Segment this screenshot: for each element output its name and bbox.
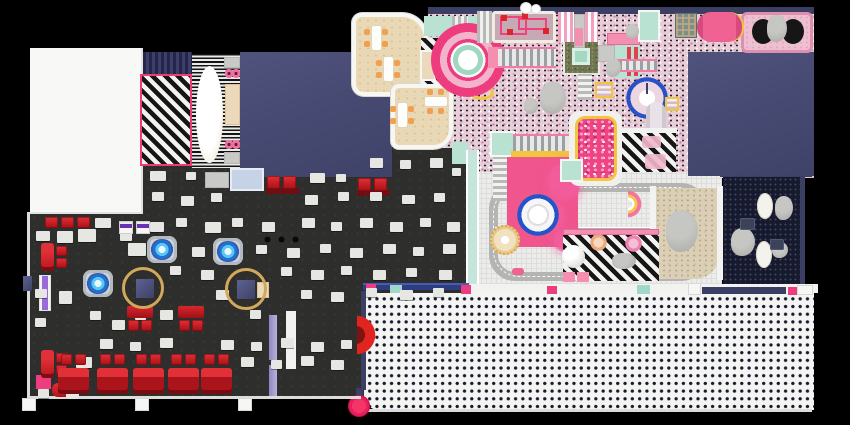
dining-table [192, 247, 205, 257]
arcade-machine [119, 221, 133, 234]
orange-chair [390, 118, 396, 124]
dining-table [176, 218, 187, 227]
dining-table [271, 360, 282, 369]
dining-table [241, 357, 254, 367]
wall-pillar [135, 398, 149, 411]
dining-table [181, 196, 194, 206]
booth-chair [218, 354, 229, 365]
navycube [23, 276, 32, 291]
booth-chair [150, 354, 161, 365]
vstripes-pink [558, 12, 574, 42]
dining-table [201, 270, 214, 280]
red-bench [41, 350, 54, 378]
red-chair [128, 320, 139, 331]
cafe-table [757, 193, 773, 219]
pinkpatch [642, 136, 661, 148]
red-chair [61, 217, 74, 228]
dining-table [331, 222, 342, 231]
dining-table [150, 222, 164, 232]
dining-table [447, 222, 460, 232]
red-chair [56, 246, 67, 256]
orange-chair [364, 41, 370, 47]
dining-table [373, 270, 386, 280]
dining-table [150, 171, 166, 181]
navy-room-right [688, 52, 814, 176]
wdot [532, 5, 540, 13]
pink-donut-pair [225, 68, 240, 79]
yellow-arc [470, 86, 494, 100]
screenshot [0, 0, 850, 425]
dining-table [90, 311, 101, 320]
vstripes-pink [585, 12, 598, 42]
dining-table [443, 244, 456, 254]
mint [562, 161, 581, 180]
dining-table [130, 342, 141, 351]
orange-chair [376, 60, 382, 66]
dining-table [100, 339, 113, 349]
dining-table [366, 288, 377, 297]
white-ball [562, 245, 585, 268]
red-chair [56, 258, 67, 268]
red-chair [141, 320, 152, 331]
dining-table [256, 245, 267, 254]
orange-chair [382, 29, 388, 35]
booth-chair [100, 354, 111, 365]
dining-table [311, 270, 324, 280]
booth-bench [97, 368, 128, 394]
holo-table [83, 270, 113, 297]
dining-table [452, 168, 461, 176]
stage-oval [196, 66, 223, 163]
dining-table [301, 290, 312, 299]
dining-table [112, 320, 125, 330]
red-chair [179, 320, 190, 331]
pinkblock [577, 272, 589, 282]
floor-plan [0, 0, 850, 425]
lavender-counter [269, 365, 277, 396]
dining-table [251, 342, 262, 351]
pillar [797, 285, 813, 295]
dining-table [360, 218, 373, 228]
rainbow-arc [628, 189, 645, 219]
teal-wall [466, 150, 479, 293]
reddot [501, 15, 507, 21]
booth-chair [171, 354, 182, 365]
dining-table [413, 247, 424, 256]
red-chair [77, 217, 90, 228]
booth-chair [204, 354, 215, 365]
dining-table [262, 222, 275, 232]
vstripes-gray [477, 11, 492, 43]
gblock [224, 57, 240, 68]
dining-table [310, 173, 325, 183]
red-table [178, 306, 204, 318]
orange-chair [394, 72, 400, 78]
red-bench-seat [283, 176, 296, 189]
red-bench-seat [267, 176, 280, 189]
booth-bench [168, 368, 199, 394]
dining-table [128, 243, 146, 256]
rung-bridge [488, 47, 556, 68]
navywall [800, 177, 805, 288]
pinkblock [575, 28, 583, 46]
plaid-mat [675, 13, 697, 38]
reddot [543, 28, 549, 34]
cream-table [398, 103, 407, 127]
booth-chair [61, 354, 72, 365]
dining-table [331, 360, 344, 370]
arcade-machine [136, 221, 150, 234]
navy-cube [237, 280, 255, 299]
dining-table [281, 267, 292, 276]
dining-table [35, 318, 46, 327]
pink-seat [625, 235, 642, 252]
terrace-edge [368, 409, 812, 412]
terrace-floor [363, 291, 814, 410]
red-bench-seat [358, 178, 371, 191]
dining-table [221, 340, 234, 350]
stage-stripes [140, 74, 192, 166]
yellow-ladder [665, 97, 679, 111]
pinksq [547, 286, 557, 294]
bar-stool [277, 235, 286, 244]
dining-table [301, 356, 314, 366]
dining-table [38, 389, 49, 398]
bar-stool [263, 235, 272, 244]
dining-table [320, 244, 331, 253]
dining-table [57, 231, 73, 243]
orange-chair [427, 108, 433, 114]
dining-table [400, 290, 413, 300]
tealseg [637, 285, 650, 294]
stage-step [230, 168, 264, 191]
dining-table [59, 291, 72, 304]
yellow-bridge [595, 82, 613, 98]
dining-table [390, 222, 403, 232]
dining-table [281, 338, 294, 348]
left-wall [27, 212, 30, 398]
red-chair [192, 320, 203, 331]
dining-table [433, 288, 444, 297]
dining-table [95, 218, 111, 228]
cream-table [384, 57, 393, 81]
beigeblock [225, 84, 240, 125]
pillar [688, 283, 701, 295]
orange-chair [438, 89, 444, 95]
dining-table [439, 270, 452, 280]
dining-table [211, 193, 222, 202]
pinkblock [563, 272, 575, 282]
orange-chair [390, 106, 396, 112]
stage-band [143, 52, 192, 75]
ball-pit [575, 116, 617, 181]
booth-chair [136, 354, 147, 365]
dining-table [35, 289, 47, 298]
dining-table [305, 195, 318, 205]
pinkpatch [645, 154, 666, 169]
toy-car [512, 268, 524, 275]
wdot [521, 3, 531, 13]
orange-chair [438, 108, 444, 114]
lavender-counter [269, 315, 277, 360]
holo-table [213, 238, 243, 265]
dining-table [331, 292, 344, 302]
dining-table [434, 193, 445, 202]
booth-chair [185, 354, 196, 365]
dining-table [287, 248, 300, 258]
dining-table [160, 310, 173, 320]
cream-table [425, 97, 447, 106]
cream-table [372, 26, 381, 50]
navy-cube [136, 279, 154, 298]
terrace-top-wall [363, 283, 469, 290]
dining-table [341, 340, 352, 349]
white-room [30, 48, 143, 214]
dtable [740, 218, 755, 230]
dining-table [250, 310, 261, 319]
mintframe [572, 48, 590, 65]
orange-chair [427, 89, 433, 95]
orange-chair [376, 72, 382, 78]
rotunda [490, 225, 520, 255]
mint [640, 12, 658, 40]
reddot [522, 13, 528, 19]
pink-cylinder [697, 12, 742, 42]
pink-donut-pair [225, 139, 240, 150]
peach-seat [590, 234, 607, 251]
dining-table [160, 338, 173, 348]
dining-table [406, 268, 417, 277]
pinkblock [488, 47, 498, 68]
dining-table [400, 160, 411, 169]
holo-table [147, 236, 177, 263]
revolving-door [357, 312, 377, 358]
dining-table [338, 192, 349, 201]
navywall [702, 287, 786, 294]
dining-table [383, 244, 396, 254]
wall-pillar [238, 398, 252, 411]
dining-table [152, 192, 164, 201]
orange-chair [382, 41, 388, 47]
dining-table [402, 195, 415, 204]
wall-pillar [22, 398, 36, 411]
booth-bench [58, 368, 89, 394]
orange-chair [408, 106, 414, 112]
dining-table [430, 158, 443, 168]
dining-table [78, 229, 96, 242]
dining-table [336, 174, 346, 182]
bar-stool [291, 235, 300, 244]
dining-table [170, 266, 181, 275]
dining-table [302, 218, 315, 228]
booth-chair [114, 354, 125, 365]
mint [492, 133, 513, 155]
gblock [224, 152, 240, 164]
dining-table [311, 342, 324, 352]
dining-table [350, 248, 363, 258]
dining-table [186, 172, 196, 180]
dining-table [420, 218, 431, 227]
pinksq [461, 285, 471, 294]
red-bench-seat [374, 178, 387, 191]
red-bench [41, 243, 54, 271]
dining-table [370, 192, 382, 201]
red-chair [45, 217, 58, 228]
dining-table [232, 218, 243, 227]
pink-room-ring [517, 194, 559, 236]
dining-table [36, 231, 50, 241]
stage-step [205, 172, 229, 188]
booth-bench [201, 368, 232, 394]
dining-table [370, 158, 383, 168]
orange-chair [394, 60, 400, 66]
dining-table [341, 266, 352, 275]
ladder [578, 74, 592, 100]
booth-bench [133, 368, 164, 394]
orange-chair [408, 118, 414, 124]
booth-chair [75, 354, 86, 365]
orange-chair [364, 29, 370, 35]
pinksq [788, 287, 797, 295]
reddot [507, 29, 513, 35]
dtable [770, 239, 784, 250]
dining-table [205, 222, 221, 233]
